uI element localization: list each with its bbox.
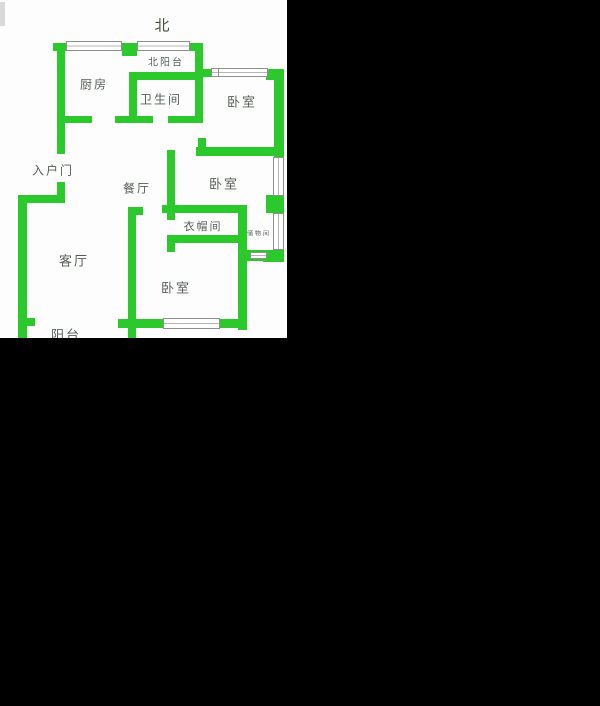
wall-segment xyxy=(57,182,65,203)
wall-segment xyxy=(18,195,27,338)
black-background: 北 北阳台厨房卫生间卧室入户门餐厅卧室衣帽间储物间客厅卧室阳台 xyxy=(0,0,600,706)
window xyxy=(218,68,268,77)
room-label-bedroom-south: 卧室 xyxy=(161,278,191,297)
room-label-north-balcony: 北阳台 xyxy=(148,54,184,69)
window xyxy=(250,252,267,259)
window xyxy=(273,213,284,250)
wall-segment xyxy=(274,72,284,157)
window xyxy=(163,318,220,329)
compass-north-label: 北 xyxy=(154,15,169,36)
room-label-bedroom-north: 卧室 xyxy=(227,92,257,111)
wall-segment xyxy=(57,43,65,154)
wall-segment xyxy=(167,243,175,252)
room-label-storage: 储物间 xyxy=(247,229,271,238)
wall-segment xyxy=(128,207,136,338)
wall-segment xyxy=(118,319,163,328)
wall-segment xyxy=(266,195,284,213)
corner-artifact-mark xyxy=(0,2,5,26)
window xyxy=(66,41,122,51)
wall-segment xyxy=(129,72,203,80)
wall-segment xyxy=(129,72,137,123)
wall-segment xyxy=(167,150,175,220)
floor-plan: 北 北阳台厨房卫生间卧室入户门餐厅卧室衣帽间储物间客厅卧室阳台 xyxy=(0,0,287,338)
wall-segment xyxy=(195,43,203,123)
window xyxy=(273,157,284,196)
room-label-kitchen: 厨房 xyxy=(80,76,108,93)
window xyxy=(137,41,190,51)
room-label-cloakroom: 衣帽间 xyxy=(184,218,223,234)
wall-segment xyxy=(238,205,247,330)
wall-segment xyxy=(27,318,35,326)
room-label-entry-door: 入户门 xyxy=(32,162,74,179)
room-label-dining: 餐厅 xyxy=(123,180,151,197)
room-label-bathroom: 卫生间 xyxy=(140,91,182,108)
wall-segment xyxy=(122,43,137,56)
room-label-living: 客厅 xyxy=(59,251,89,270)
room-label-bedroom-east: 卧室 xyxy=(209,174,239,193)
wall-segment xyxy=(196,147,278,156)
wall-segment xyxy=(167,235,247,243)
wall-segment xyxy=(198,138,206,147)
room-label-balcony: 阳台 xyxy=(51,325,81,339)
